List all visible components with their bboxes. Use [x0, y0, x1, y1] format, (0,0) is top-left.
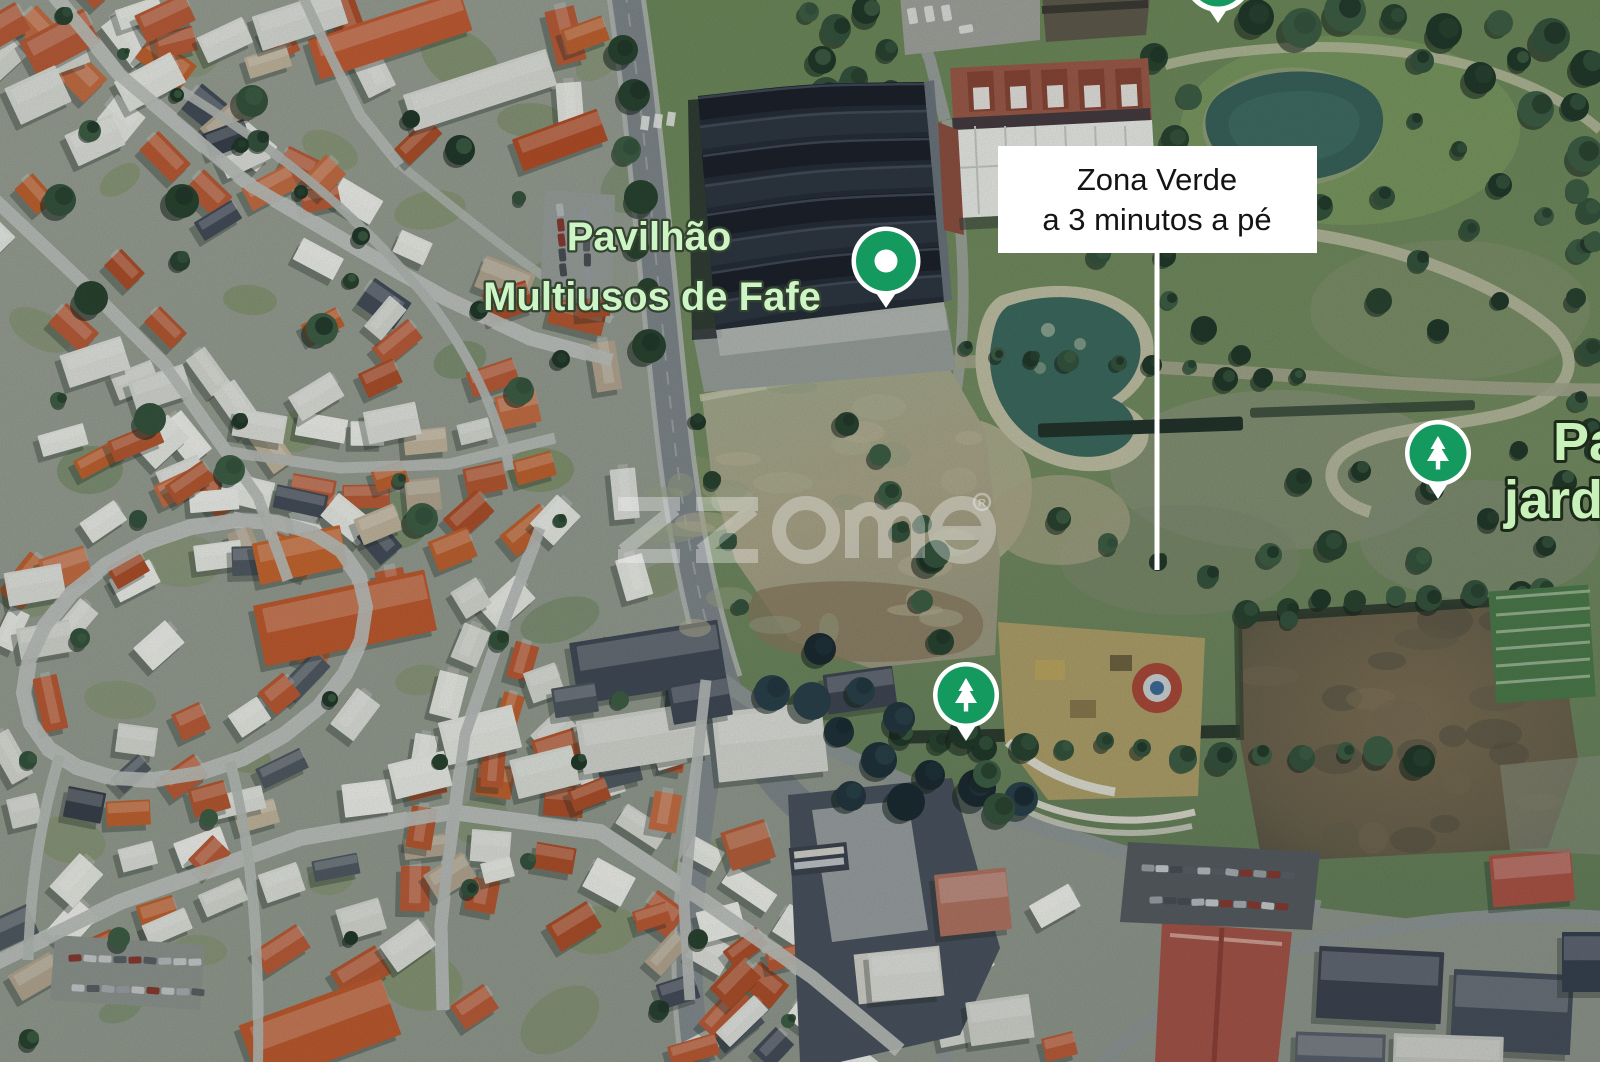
svg-text:jardin: jardin	[1503, 470, 1600, 530]
svg-text:Pa: Pa	[1553, 412, 1600, 472]
svg-text:Zona Verde: Zona Verde	[1077, 162, 1237, 197]
svg-text:Multiusos de Fafe: Multiusos de Fafe	[483, 275, 821, 319]
svg-text:Pavilhão: Pavilhão	[567, 215, 732, 259]
svg-text:a 3 minutos a pé: a 3 minutos a pé	[1042, 202, 1271, 237]
svg-text:R: R	[978, 498, 986, 510]
